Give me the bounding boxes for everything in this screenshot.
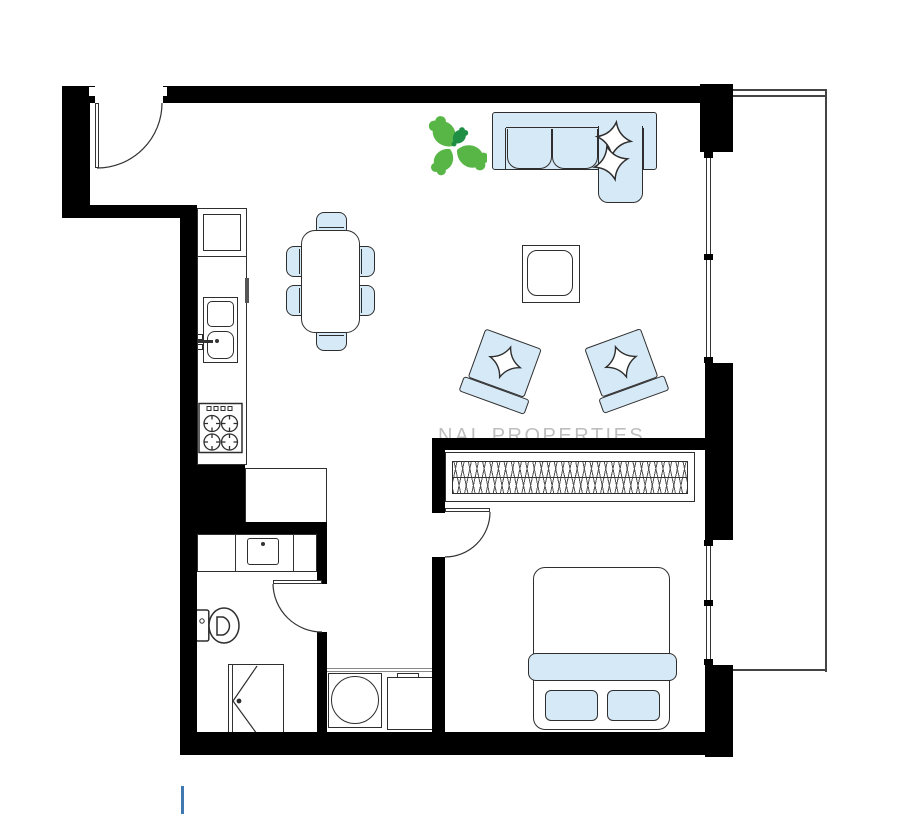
- entrance-jamb-notch-left: [89, 87, 95, 96]
- wall-bedroom-left-lower: [432, 557, 445, 735]
- entrance-jamb-notch-right: [162, 87, 167, 96]
- wall-left-upper: [62, 86, 90, 218]
- window-living-mullion-top: [704, 152, 713, 158]
- window-bedroom-mullion-mid: [704, 600, 713, 606]
- vanity-divider-2: [293, 534, 294, 572]
- kitchen-faucet-bar: [198, 340, 213, 343]
- coffee-table: [522, 245, 580, 303]
- laundry-cabinet: [387, 677, 433, 730]
- scale-mark: [181, 786, 184, 814]
- bed-pillow-right: [607, 690, 660, 721]
- sofa-armrest-left-line: [505, 128, 506, 169]
- shower-bifold-door: [228, 664, 286, 736]
- wall-bottom: [180, 732, 733, 755]
- bathroom-door-arc: [273, 584, 322, 632]
- balcony-right-line: [825, 89, 827, 672]
- bed-blanket: [528, 653, 677, 681]
- dining-chair-south: [316, 331, 347, 351]
- wall-right-column-top: [700, 84, 733, 152]
- wall-bath-top: [197, 522, 327, 534]
- floor-plan: NAL PROPERTIES: [0, 0, 922, 816]
- bedroom-door-leaf: [445, 508, 490, 512]
- window-living-mullion-bottom: [704, 357, 713, 363]
- vanity-divider-1: [235, 534, 236, 572]
- wall-bedroom-left-upper: [432, 438, 445, 513]
- laundry-cabinet-tab: [397, 673, 419, 678]
- kitchen-sink-basin-top: [207, 301, 234, 327]
- dining-table: [301, 230, 360, 333]
- kitchen-faucet-dot: [215, 339, 219, 343]
- balcony-bottom-line: [733, 669, 826, 671]
- kitchen-tall-cabinet-inner: [203, 214, 241, 251]
- kitchen-counter-handle: [245, 278, 249, 303]
- bedroom-door-arc: [445, 512, 490, 557]
- armchair-left: [453, 322, 552, 420]
- dining-chair-north: [316, 212, 347, 232]
- pillow-star-1: [595, 120, 633, 158]
- entrance-opening: [95, 86, 163, 103]
- wall-hall: [62, 205, 197, 218]
- toilet-icon: [195, 604, 243, 648]
- entrance-door-arc: [97, 103, 162, 168]
- armchair-right: [575, 321, 674, 419]
- kitchen-faucet-mount-2: [197, 344, 203, 350]
- window-bedroom-mullion-bottom: [704, 659, 713, 665]
- plant-icon: [423, 106, 487, 176]
- wardrobe-rail-line: [452, 477, 688, 478]
- wall-kitchen-block: [180, 465, 245, 525]
- window-bedroom-mullion-top: [704, 540, 713, 546]
- wall-right-column-mid: [705, 363, 733, 540]
- kitchen-sink-basin-bottom: [207, 331, 234, 359]
- washing-machine-drum: [331, 676, 379, 724]
- coffee-table-top: [527, 250, 573, 296]
- bed-pillow-left: [545, 690, 598, 721]
- vanity-faucet-dot: [261, 542, 265, 546]
- cooktop: [198, 402, 244, 454]
- watermark-text: NAL PROPERTIES: [438, 425, 645, 448]
- window-living-mullion-mid: [704, 254, 713, 260]
- sofa-pillows: [586, 118, 642, 184]
- balcony-railing-line-2: [733, 95, 825, 97]
- wall-right-column-bottom: [705, 665, 733, 757]
- entrance-door-leaf: [95, 103, 99, 168]
- sofa-armrest-right-line: [643, 128, 644, 169]
- laundry-counter-line-1: [327, 668, 433, 669]
- bathroom-door-leaf: [273, 580, 322, 584]
- wall-bath-right-upper: [317, 534, 327, 584]
- sofa-cushion-1: [507, 129, 552, 169]
- storage-unit: [245, 468, 327, 525]
- balcony-railing-line-1: [733, 89, 825, 91]
- laundry-counter-line-2: [327, 671, 433, 672]
